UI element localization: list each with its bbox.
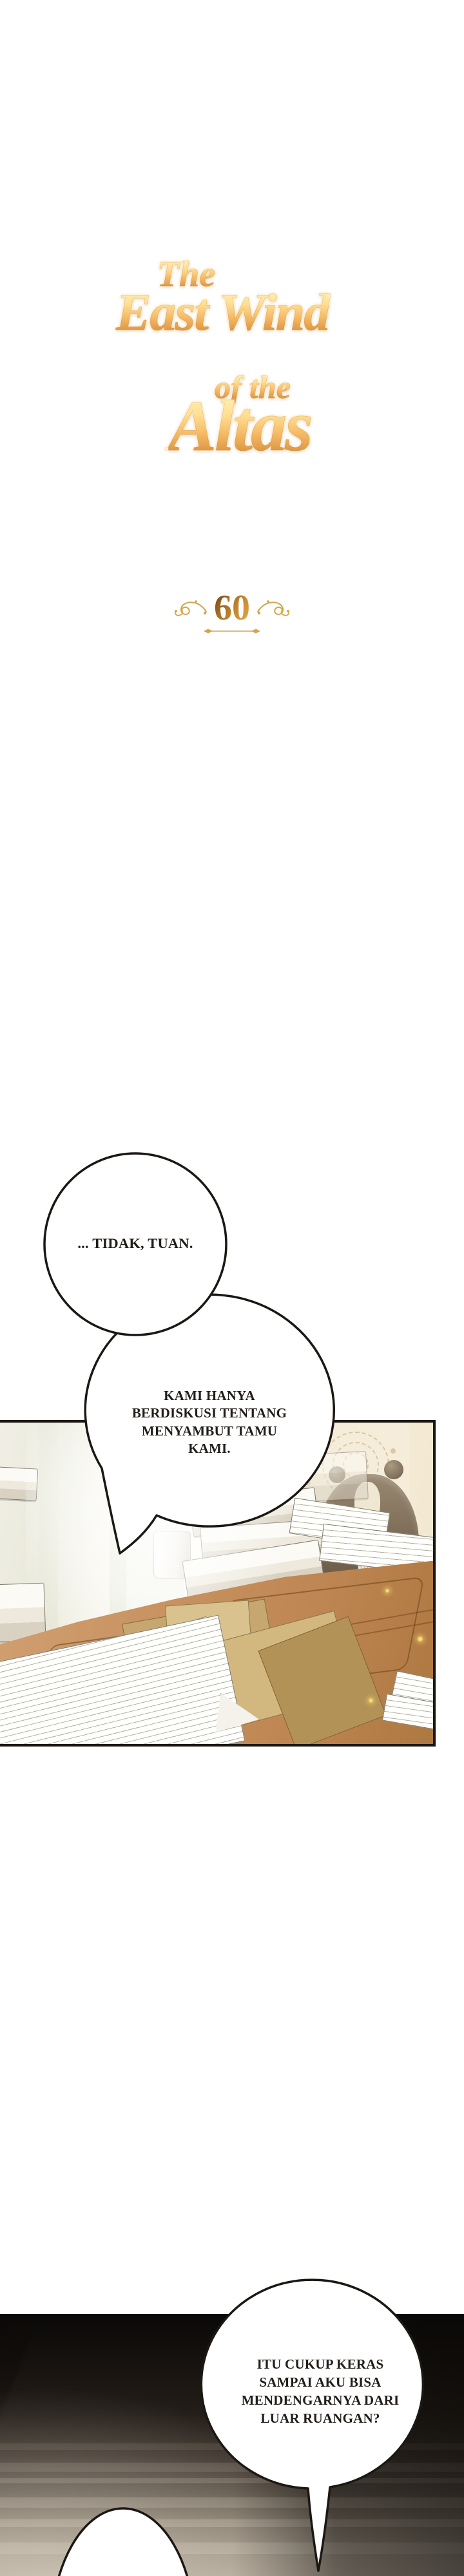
bubble-line: MENDENGARNYA DARI — [227, 2392, 414, 2410]
flourish-left-icon — [173, 598, 208, 618]
lace-dot — [391, 1448, 396, 1454]
chapter-row: 60 — [173, 590, 291, 626]
bubble-line: LUAR RUANGAN? — [227, 2410, 414, 2428]
bubble-line: MENYAMBUT TAMU — [113, 1423, 306, 1440]
bubble-line: BERDISKUSI TENTANG — [113, 1405, 306, 1422]
chapter-divider-icon — [201, 627, 263, 635]
sparkle-dot — [418, 1636, 423, 1642]
chapter-ornament: 60 — [173, 590, 291, 638]
bubble-line: ITU CUKUP KERAS — [227, 2356, 414, 2374]
title-word-east-wind: East Wind — [116, 286, 329, 339]
title-word-altas: Altas — [168, 390, 311, 462]
sparkle-dot — [385, 1589, 389, 1593]
bubble-line: KAMI HANYA — [113, 1387, 306, 1405]
speech-bubble-2-text: KAMI HANYA BERDISKUSI TENTANG MENYAMBUT … — [113, 1387, 306, 1457]
speech-bubble-1-text: ... TIDAK, TUAN. — [52, 1235, 219, 1253]
bubble-line: SAMPAI AKU BISA — [227, 2374, 414, 2392]
sparkle-dot — [369, 1698, 373, 1703]
speech-bubble-group-top — [26, 1146, 348, 1571]
flourish-right-icon — [256, 598, 291, 618]
chapter-number: 60 — [214, 590, 250, 626]
bubble-line: ... TIDAK, TUAN. — [52, 1235, 219, 1253]
speech-bubble-4 — [51, 2508, 195, 2576]
comic-page: The East Wind of the Altas 60 — [0, 0, 464, 2576]
speech-bubble-3-text: ITU CUKUP KERAS SAMPAI AKU BISA MENDENGA… — [227, 2356, 414, 2428]
chair-knob — [384, 1460, 403, 1479]
bubble-line: KAMI. — [113, 1440, 306, 1457]
